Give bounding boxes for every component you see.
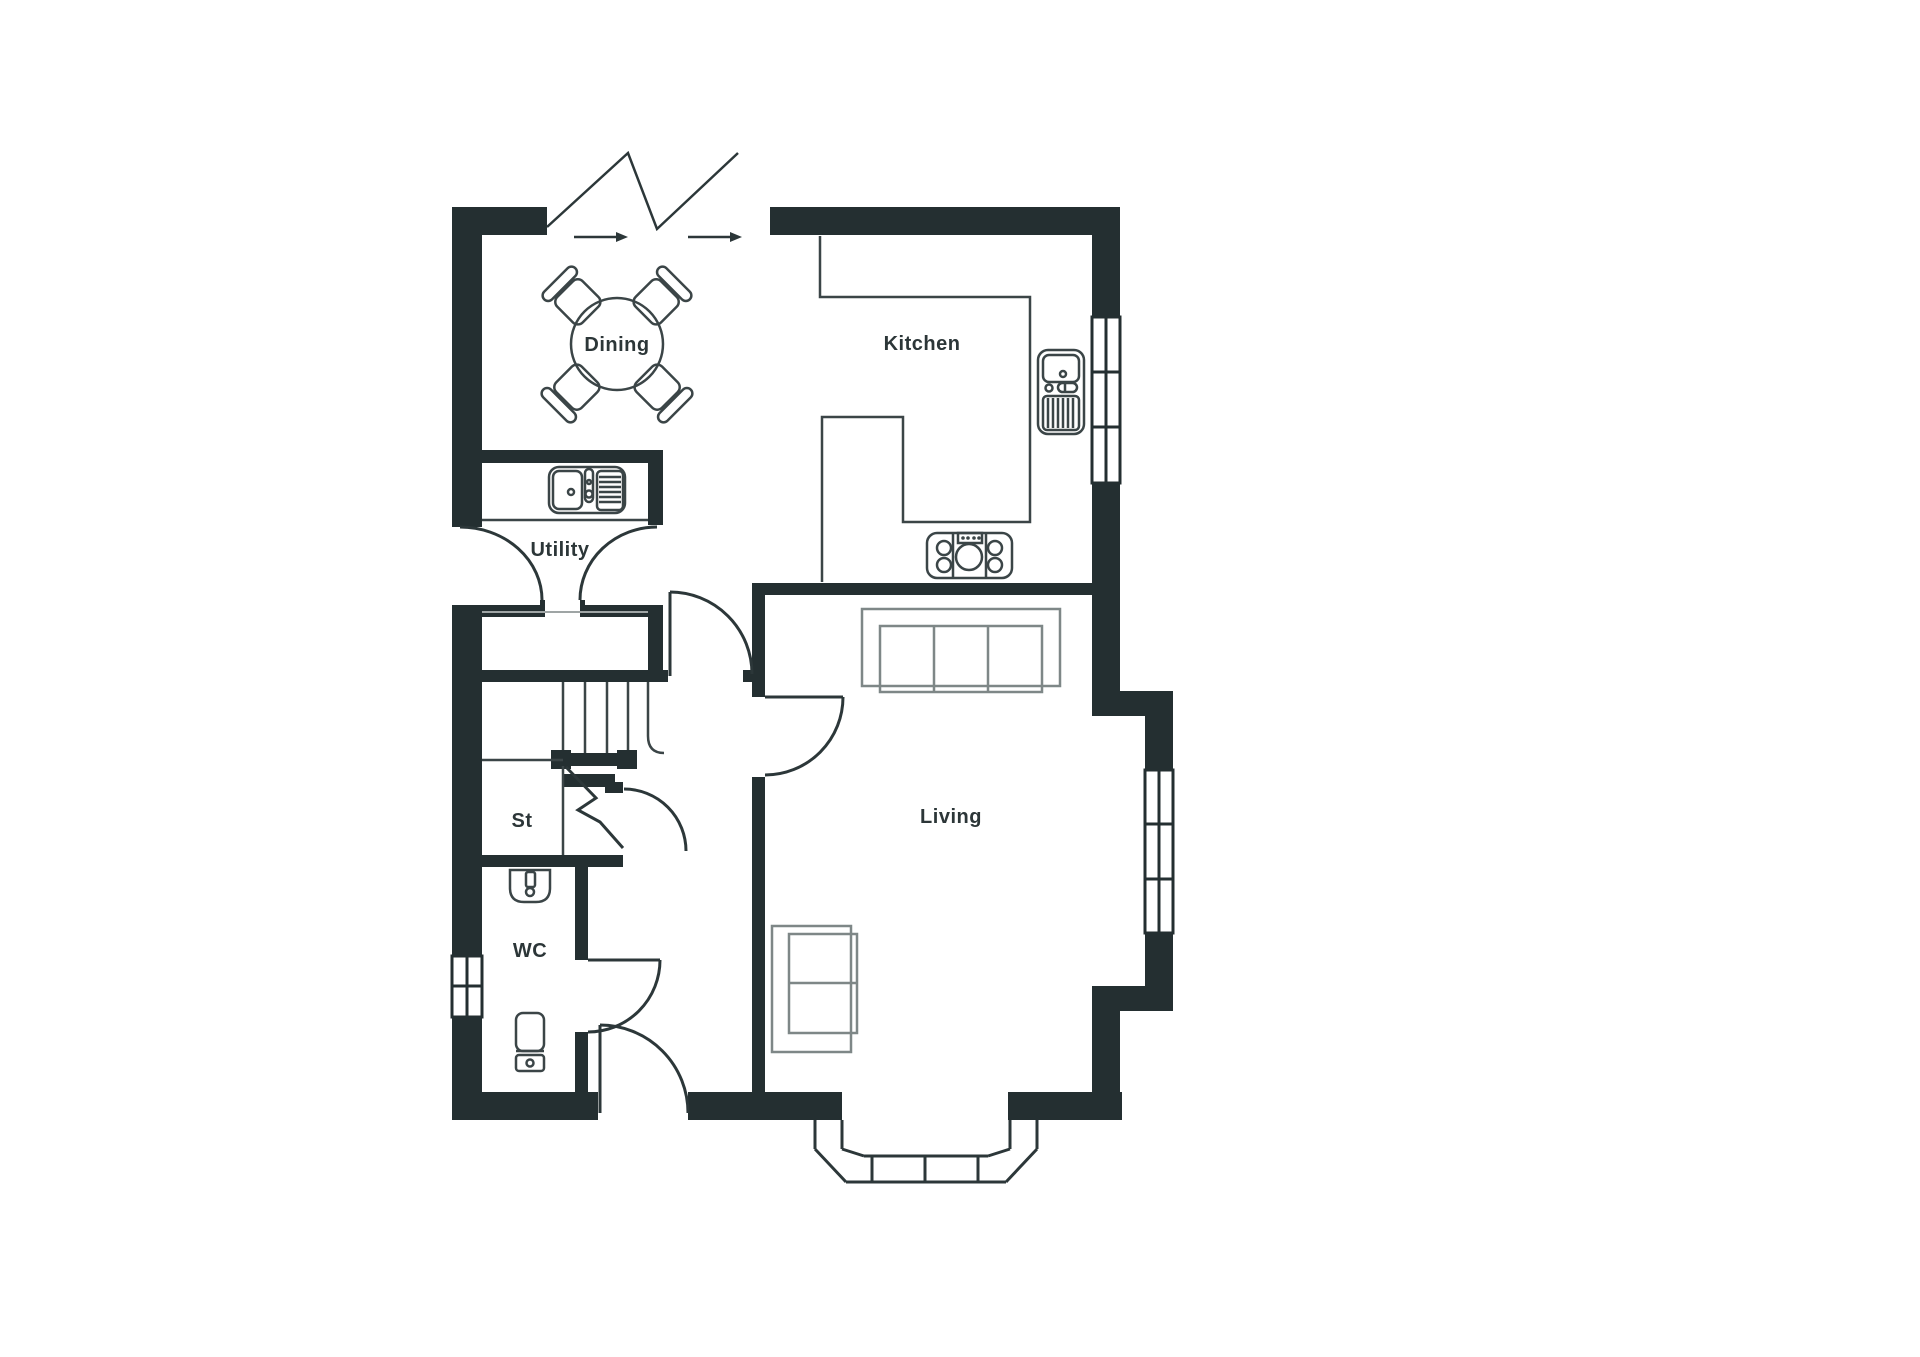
dining-chair-icon [540,264,606,330]
store-closet [482,760,563,855]
wc-toilet-icon [516,1013,544,1071]
kitchen-sink-icon [1038,350,1084,434]
stair-hall-door-swing-icon [624,789,686,851]
kitchen-right-wall-lower [1092,483,1120,691]
utility-door-jamb-right [580,600,585,617]
landing-wall [481,670,668,682]
living-west-wall [752,777,765,1092]
drainer-lines [1048,398,1073,428]
front-door-swing-icon [600,1025,688,1113]
wc-label: WC [513,940,547,962]
utility-door-swing-icon [460,527,657,600]
windows [452,317,1173,1017]
store-label: St [512,810,533,832]
hob-icon [927,533,1012,578]
sofa-icon [862,609,1060,692]
living-right-wall-upper [1145,716,1173,770]
dining-chair-icon [628,264,694,330]
utility-right-wall [648,450,663,525]
step-out-wall [1092,691,1173,716]
kitchen-living-divider-wall [752,583,1092,595]
dining-label: Dining [584,334,649,356]
living-right-wall-lower [1145,933,1173,986]
right-wall-bottom [1092,1011,1120,1092]
bottom-wall-middle [688,1092,842,1120]
living-door-swing-icon [765,697,843,775]
living-west-spur-wall [752,583,765,697]
dining-chair-icon [539,359,605,425]
utility-sink-icon [549,467,625,513]
dining-chair-icon [629,359,695,425]
left-wall-upper [452,207,482,527]
wc-window-icon [452,956,482,1017]
wc-door-swing-icon [588,960,660,1032]
stairs-icon [482,612,664,848]
wc-right-wall-lower [575,1032,588,1092]
utility-door-jamb-left [540,600,545,617]
kitchen-label: Kitchen [884,333,961,355]
entry-arrow-icon [574,232,628,242]
hall-door-swing-icon [670,592,752,676]
sofa-icon [772,926,857,1052]
entry [547,153,742,242]
kitchen-right-wall-upper [1092,235,1120,317]
living-window-icon [1145,770,1173,933]
stair-newel-right [617,750,637,769]
bottom-wall-left [452,1092,598,1120]
left-wall-middle [452,605,482,956]
drainer-lines [599,477,621,502]
entry-arrow-icon [688,232,742,242]
kitchen-window-icon [1092,317,1120,483]
utility-top-wall [452,450,663,463]
dining-top-wall [452,207,547,235]
wc-basin-icon [510,870,550,902]
wc-right-wall-upper [575,867,588,960]
floor-plan-page: Dining Kitchen Utility St WC Living [0,0,1920,1357]
floor-plan-drawing: Dining Kitchen Utility St WC Living [0,0,1920,1357]
bottom-wall-right [1008,1092,1122,1120]
bay-window-icon [815,1120,1037,1182]
kitchen-counter-icon [820,236,1030,582]
step-in-wall [1092,986,1173,1011]
wc-top-wall [482,855,623,867]
living-label: Living [920,806,982,828]
kitchen-top-wall [770,207,1120,235]
entry-zigzag-icon [547,153,738,229]
stair-lower-rail-end [605,782,623,793]
utility-label: Utility [530,539,589,561]
